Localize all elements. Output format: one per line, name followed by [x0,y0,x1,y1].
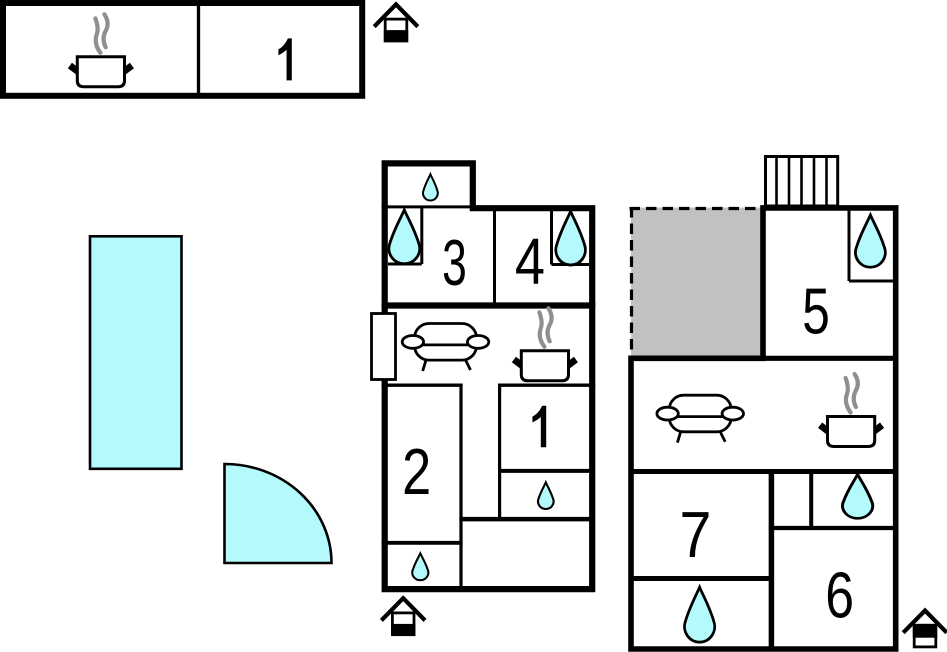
svg-text:2: 2 [402,437,431,508]
svg-text:3: 3 [442,227,467,299]
svg-text:7: 7 [680,499,712,571]
svg-text:4: 4 [515,225,545,298]
svg-text:6: 6 [825,560,854,632]
svg-text:5: 5 [802,277,830,349]
